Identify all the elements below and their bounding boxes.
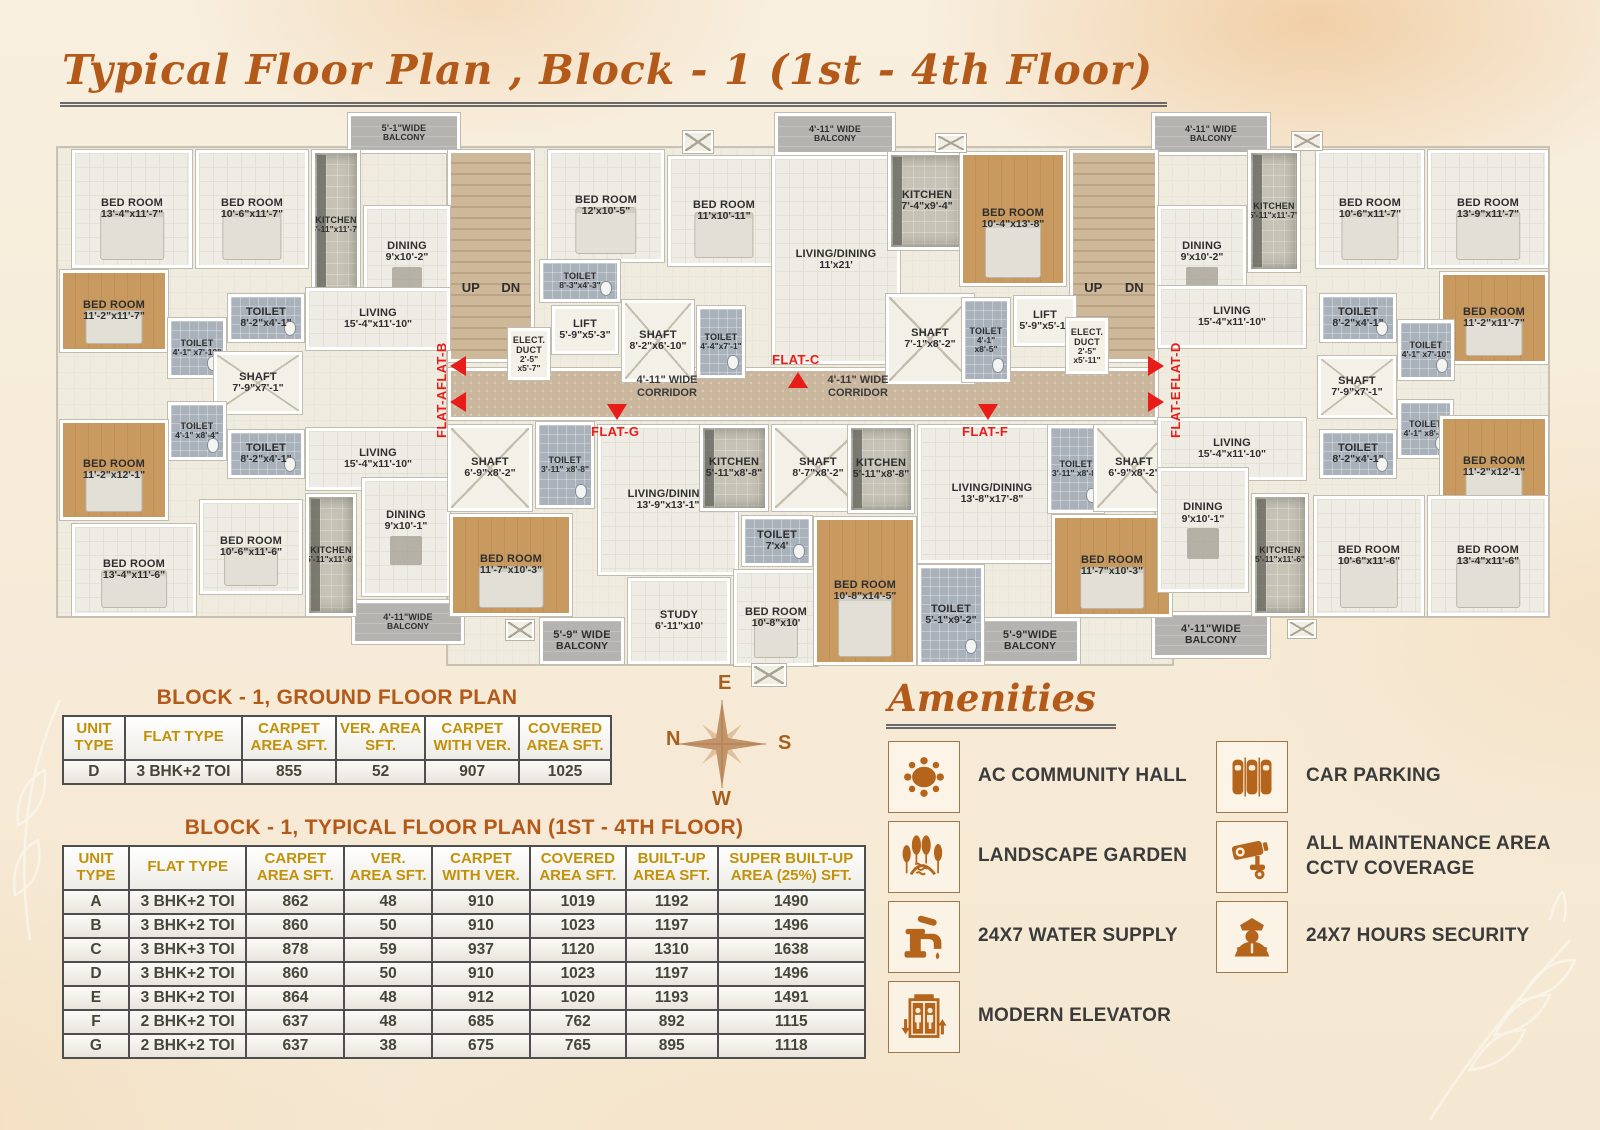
cell: 1118 (718, 1034, 865, 1058)
water-tap-icon (888, 901, 960, 973)
ground-table-title: BLOCK - 1, GROUND FLOOR PLAN (62, 686, 612, 710)
room-dimensions: 13'-8"x17'-8" (961, 494, 1024, 506)
cell: 1197 (626, 914, 718, 938)
cell: 910 (432, 962, 530, 986)
room-bed-room: BED ROOM11'-2"x11'-7" (60, 270, 168, 352)
flat-marker-flat-e: FLAT-E (1168, 386, 1184, 438)
amenities-column-left: AC COMMUNITY HALL LANDSCAPE GARDEN (888, 740, 1187, 1053)
room-bed-room: BED ROOM10'-8"x10' (734, 570, 818, 666)
room-dimensions: 7'-1"x8'-2" (904, 339, 955, 351)
cell: 1115 (718, 1010, 865, 1034)
cell: 910 (432, 914, 530, 938)
room-dimensions: 10'-4"x13'-8" (982, 219, 1045, 231)
cell: 937 (432, 938, 530, 962)
cell: 862 (246, 890, 344, 914)
cell: 3 BHK+2 TOI (129, 890, 247, 914)
amenity-label: CAR PARKING (1306, 764, 1441, 789)
room-shaft: SHAFT7'-9"x7'-1" (214, 352, 302, 414)
cell: 1025 (519, 760, 611, 784)
room-dimensions: 7'-9"x7'-1" (232, 383, 283, 395)
cell: 1490 (718, 890, 865, 914)
room-dimensions: 13'-4"x11'-6" (1457, 556, 1519, 568)
room-toilet: TOILET8'-2"x4'-1" (1320, 294, 1396, 342)
cell: 878 (246, 938, 344, 962)
room-dimensions: 4'-1" x7'-10" (1402, 350, 1451, 359)
cell: C (63, 938, 129, 962)
table-row: F2 BHK+2 TOI637486857628921115 (63, 1010, 865, 1034)
cell: 1491 (718, 986, 865, 1010)
room-dimensions: 7'-4"x9'-4" (901, 201, 952, 213)
room-dimensions: 9'x10'-2" (1181, 252, 1224, 264)
vent-box (1288, 620, 1316, 638)
room-dimensions: 8'-2"x4'-1" (1332, 454, 1383, 466)
amenity-label: 24X7 WATER SUPPLY (978, 924, 1178, 949)
stair-up-label: UP (1084, 280, 1102, 295)
compass-star-icon (672, 694, 772, 794)
room-dimensions: 7'-9"x7'-1" (1331, 387, 1382, 399)
room-dimensions: 13'-9"x11'-7" (1457, 209, 1519, 221)
room-toilet: TOILET3'-11" x8'-8" (536, 422, 594, 508)
flat-marker-flat-c: FLAT-C (772, 352, 832, 368)
amenity-label: MODERN ELEVATOR (978, 1004, 1171, 1029)
room-bed-room: BED ROOM10'-6"x11'-7" (196, 150, 308, 268)
room-dining: DINING9'x10'-1" (362, 478, 450, 596)
flat-marker-arrow (978, 404, 998, 420)
room-dimensions: 9'x10'-1" (385, 521, 428, 533)
cell: 1120 (530, 938, 626, 962)
room-dimensions: 11'-2"x11'-7" (1463, 318, 1525, 330)
room-toilet: TOILET4'-4"x7'-1" (697, 306, 745, 378)
amenity-item-modern-elevator: MODERN ELEVATOR (888, 980, 1187, 1053)
cell: 38 (344, 1034, 432, 1058)
brochure-page: Typical Floor Plan , Block - 1 (1st - 4t… (0, 0, 1600, 1130)
room-kitchen: KITCHEN5'-11"x8'-8" (700, 425, 768, 511)
room-dimensions: 8'-2"x4'-1" (240, 454, 291, 466)
room-bed-room: BED ROOM13'-4"x11'-6" (72, 524, 196, 616)
landscape-garden-icon (888, 821, 960, 893)
room-dimensions: 6'-9"x8'-2" (1108, 468, 1159, 480)
room-dimensions: 3'-11" x8'-8" (1052, 469, 1100, 478)
ground-floor-table-section: BLOCK - 1, GROUND FLOOR PLAN UNIT TYPEFL… (62, 686, 612, 785)
column-header: CARPET AREA SFT. (242, 716, 336, 760)
table-row: D3 BHK+2 TOI855529071025 (63, 760, 611, 784)
stair-up-label: UP (462, 280, 480, 295)
room-dimensions: 4'-1" x8'-5" (965, 336, 1007, 355)
room-toilet: TOILET7'x4' (742, 516, 812, 566)
room-toilet: TOILET4'-1" x8'-4" (168, 402, 226, 460)
room-bed-room: BED ROOM10'-6"x11'-6" (200, 500, 302, 594)
room-elect-duct: ELECT. DUCT2'-5" x5'-7" (508, 328, 550, 380)
room-dimensions: 12'x10'-5" (582, 206, 631, 218)
cell: 685 (432, 1010, 530, 1034)
flat-marker-flat-g: FLAT-G (591, 424, 651, 440)
cell: 2 BHK+2 TOI (129, 1010, 247, 1034)
cell: G (63, 1034, 129, 1058)
room-dimensions: 4'-1" x8'-4" (175, 431, 219, 440)
cell: 1020 (530, 986, 626, 1010)
community-table-icon (888, 741, 960, 813)
amenity-label: ALL MAINTENANCE AREA CCTV COVERAGE (1306, 832, 1561, 881)
room-dimensions: 10'-8"x10' (752, 618, 801, 630)
cell: 762 (530, 1010, 626, 1034)
compass-rose: E N S W (648, 672, 800, 814)
room-dimensions: 6'-11"x10' (655, 621, 703, 633)
flat-marker-flat-a: FLAT-A (434, 386, 450, 438)
room-toilet: TOILET8'-2"x4'-1" (1320, 430, 1396, 478)
cell: D (63, 760, 125, 784)
table-row: B3 BHK+2 TOI86050910102311971496 (63, 914, 865, 938)
cell: 765 (530, 1034, 626, 1058)
room-dimensions: 15'-4"x11'-10" (1198, 449, 1266, 461)
cell: 675 (432, 1034, 530, 1058)
typical-floor-table-section: BLOCK - 1, TYPICAL FLOOR PLAN (1ST - 4TH… (62, 816, 866, 1059)
cell: 637 (246, 1034, 344, 1058)
cell: 1638 (718, 938, 865, 962)
room-bed-room: BED ROOM10'-6"x11'-7" (1316, 150, 1424, 268)
compass-letter-south: S (778, 732, 791, 755)
room-dimensions: BALCONY (383, 133, 425, 142)
room-toilet: TOILET8'-2"x4'-1" (228, 430, 304, 478)
column-header: VER. AREA SFT. (344, 846, 432, 890)
compass-letter-north: N (666, 728, 680, 751)
cell: 59 (344, 938, 432, 962)
column-header: BUILT-UP AREA SFT. (626, 846, 718, 890)
room-dimensions: BALCONY (1004, 641, 1056, 653)
cell: 855 (242, 760, 336, 784)
room-dimensions: 8'-2"x4'-1" (240, 318, 291, 330)
flat-marker-arrow (450, 356, 466, 376)
room-dimensions: 10'-6"x11'-6" (1338, 556, 1400, 568)
header-row: UNIT TYPEFLAT TYPECARPET AREA SFT.VER. A… (63, 846, 865, 890)
stair-dn-label: DN (1125, 280, 1144, 295)
column-header: SUPER BUILT-UP AREA (25%) SFT. (718, 846, 865, 890)
room-bed-room: BED ROOM10'-6"x11'-6" (1314, 496, 1424, 616)
room-lift: LIFT5'-9"x5'-3" (552, 306, 618, 354)
cell: 1496 (718, 914, 865, 938)
room-dimensions: 11'-2"x12'-1" (1463, 467, 1525, 479)
cell: 1023 (530, 914, 626, 938)
cell: B (63, 914, 129, 938)
cell: 895 (626, 1034, 718, 1058)
room-bed-room: BED ROOM12'x10'-5" (548, 150, 664, 262)
room-dimensions: 4'-4"x7'-1" (700, 342, 741, 351)
amenity-item-water-supply: 24X7 WATER SUPPLY (888, 900, 1187, 973)
room-shaft: SHAFT6'-9"x8'-2" (448, 425, 532, 511)
room-dimensions: 10'-8"x14'-5" (834, 591, 897, 603)
cell: 50 (344, 914, 432, 938)
room-kitchen: KITCHEN5'-11"x11'-7" (312, 150, 360, 300)
compass-letter-east: E (718, 672, 731, 695)
balcony: 4'-11"WIDEBALCONY (352, 600, 464, 644)
room-dimensions: 11'-7"x10'-3" (1081, 566, 1143, 578)
amenity-label: LANDSCAPE GARDEN (978, 844, 1187, 869)
column-header: COVERED AREA SFT. (530, 846, 626, 890)
room-dimensions: 5'-11"x11'-6" (306, 555, 356, 564)
room-dimensions: 5'-11"x11'-7" (1249, 211, 1299, 220)
room-dimensions: 15'-4"x11'-10" (1198, 317, 1266, 329)
room-toilet: TOILET8'-3"x4'-3" (540, 260, 620, 302)
typical-floor-table: UNIT TYPEFLAT TYPECARPET AREA SFT.VER. A… (62, 845, 866, 1059)
room-toilet: TOILET4'-1" x8'-5" (962, 298, 1010, 382)
cell: 1310 (626, 938, 718, 962)
room-dimensions: 13'-4"x11'-7" (101, 209, 163, 221)
room-dimensions: 3'-11" x8'-8" (541, 465, 589, 474)
column-header: FLAT TYPE (129, 846, 247, 890)
room-dimensions: 5'-11"x11'-7" (312, 225, 360, 234)
room-kitchen: KITCHEN7'-4"x9'-4" (888, 152, 966, 250)
cell: 48 (344, 1010, 432, 1034)
stair-dn-label: DN (501, 280, 520, 295)
room-dimensions: 11'x10'-11" (697, 211, 750, 223)
room-dimensions: 5'-9"x5'-1" (1019, 321, 1070, 333)
room-dimensions: 11'-7"x10'-3" (480, 565, 542, 577)
room-kitchen: KITCHEN5'-11"x11'-6" (1252, 494, 1308, 616)
room-dimensions: BALCONY (556, 641, 608, 653)
room-dimensions: 5'-11"x11'-6" (1255, 555, 1305, 564)
room-dimensions: 10'-6"x11'-7" (1339, 209, 1401, 221)
balcony: 5'-9" WIDEBALCONY (540, 618, 624, 664)
room-dimensions: 11'-2"x12'-1" (83, 470, 145, 482)
balcony: 4'-11"WIDEBALCONY (1152, 612, 1270, 658)
room-dimensions: 8'-7"x8'-2" (792, 468, 843, 480)
column-header: VER. AREA SFT. (336, 716, 426, 760)
cell: 860 (246, 962, 344, 986)
room-bed-room: BED ROOM10'-8"x14'-5" (814, 517, 916, 665)
room-toilet: TOILET5'-1"x9'-2" (918, 565, 984, 665)
room-dimensions: 8'-3"x4'-3" (559, 281, 600, 290)
vent-box (1292, 132, 1322, 150)
column-header: CARPET WITH VER. (432, 846, 530, 890)
cctv-camera-icon (1216, 821, 1288, 893)
room-bed-room: BED ROOM11'-2"x12'-1" (60, 420, 168, 520)
amenities-title: Amenities (886, 676, 1116, 729)
cell: 3 BHK+2 TOI (125, 760, 242, 784)
flat-marker-flat-b: FLAT-B (434, 338, 450, 390)
room-dimensions: 11'-2"x11'-7" (83, 311, 145, 323)
room-dimensions: 5'-1"x9'-2" (925, 615, 976, 627)
room-dimensions: BALCONY (1190, 134, 1232, 143)
amenity-item-community-hall: AC COMMUNITY HALL (888, 740, 1187, 813)
room-bed-room: BED ROOM13'-4"x11'-6" (1428, 496, 1548, 616)
compass-letter-west: W (712, 788, 731, 811)
room-dimensions: 15'-4"x11'-10" (344, 459, 412, 471)
room-dimensions: 13'-9"x13'-1" (637, 500, 700, 512)
typical-table-title: BLOCK - 1, TYPICAL FLOOR PLAN (1ST - 4TH… (62, 816, 866, 840)
cell: D (63, 962, 129, 986)
balcony: 5'-1"WIDEBALCONY (348, 113, 460, 153)
room-bed-room: BED ROOM11'-7"x10'-3" (1052, 515, 1172, 617)
amenities-section: Amenities AC COMMUNITY HALL (880, 676, 1570, 729)
cell: 1019 (530, 890, 626, 914)
room-dimensions: BALCONY (387, 622, 429, 631)
column-header: CARPET WITH VER. (425, 716, 519, 760)
vent-box (506, 620, 534, 640)
cell: E (63, 986, 129, 1010)
room-dimensions: 8'-2"x4'-1" (1332, 318, 1383, 330)
room-dimensions: 2'-5" x5'-7" (511, 355, 547, 374)
table-row: E3 BHK+2 TOI86448912102011931491 (63, 986, 865, 1010)
cell: 892 (626, 1010, 718, 1034)
room-name: ELECT. DUCT (1069, 327, 1105, 347)
elevator-icon (888, 981, 960, 1053)
balcony: 4'-11" WIDEBALCONY (1152, 113, 1270, 155)
cell: 1023 (530, 962, 626, 986)
table-row: C3 BHK+3 TOI87859937112013101638 (63, 938, 865, 962)
cell: 637 (246, 1010, 344, 1034)
cell: 1193 (626, 986, 718, 1010)
cell: 52 (336, 760, 426, 784)
room-bed-room: BED ROOM13'-4"x11'-7" (72, 150, 192, 268)
cell: 864 (246, 986, 344, 1010)
cell: 912 (432, 986, 530, 1010)
room-dimensions: 5'-9"x5'-3" (559, 330, 610, 342)
flat-marker-arrow (1148, 356, 1164, 376)
room-kitchen: KITCHEN5'-11"x11'-6" (306, 494, 356, 616)
room-shaft: SHAFT7'-1"x8'-2" (886, 294, 974, 384)
amenity-label: AC COMMUNITY HALL (978, 764, 1187, 789)
flat-marker-flat-f: FLAT-F (962, 424, 1022, 440)
cell: 860 (246, 914, 344, 938)
column-header: UNIT TYPE (63, 716, 125, 760)
cell: 1496 (718, 962, 865, 986)
amenity-item-car-parking: CAR PARKING (1216, 740, 1561, 813)
cell: 48 (344, 890, 432, 914)
room-dimensions: 10'-6"x11'-7" (221, 209, 283, 221)
room-dimensions: 15'-4"x11'-10" (344, 319, 412, 331)
room-elect-duct: ELECT. DUCT2'-5" x5'-11" (1066, 318, 1108, 374)
security-guard-icon (1216, 901, 1288, 973)
cell: F (63, 1010, 129, 1034)
cell: 907 (425, 760, 519, 784)
room-dimensions: 11'x21' (819, 260, 853, 272)
room-bed-room: BED ROOM11'-7"x10'-3" (450, 514, 572, 616)
room-dimensions: 2'-5" x5'-11" (1069, 347, 1105, 366)
room-living-dining: LIVING/DINING13'-8"x17'-8" (918, 425, 1066, 563)
room-name: DINING (1183, 501, 1223, 513)
room-bed-room: BED ROOM11'x10'-11" (668, 156, 780, 266)
car-parking-icon (1216, 741, 1288, 813)
cell: 910 (432, 890, 530, 914)
room-dining: DINING9'x10'-1" (1158, 468, 1248, 592)
room-name: ELECT. DUCT (511, 335, 547, 355)
column-header: UNIT TYPE (63, 846, 129, 890)
room-kitchen: KITCHEN5'-11"x8'-8" (848, 425, 914, 513)
cell: A (63, 890, 129, 914)
room-bed-room: BED ROOM13'-9"x11'-7" (1428, 150, 1548, 268)
cell: 3 BHK+2 TOI (129, 962, 247, 986)
table-row: G2 BHK+2 TOI637386757658951118 (63, 1034, 865, 1058)
room-toilet: TOILET4'-1" x7'-10" (1398, 320, 1454, 380)
room-shaft: SHAFT8'-2"x6'-10" (622, 300, 694, 382)
room-dimensions: BALCONY (814, 134, 856, 143)
table-row: A3 BHK+2 TOI86248910101911921490 (63, 890, 865, 914)
flat-marker-arrow (607, 404, 627, 420)
flat-marker-flat-d: FLAT-D (1168, 338, 1184, 390)
cell: 3 BHK+2 TOI (129, 986, 247, 1010)
column-header: CARPET AREA SFT. (246, 846, 344, 890)
room-dimensions: 5'-11"x8'-8" (706, 468, 762, 480)
room-dimensions: 10'-6"x11'-6" (220, 547, 282, 559)
room-bed-room: BED ROOM11'-2"x11'-7" (1440, 272, 1548, 364)
balcony: 4'-11" WIDEBALCONY (775, 113, 895, 155)
ground-floor-table: UNIT TYPEFLAT TYPECARPET AREA SFT.VER. A… (62, 715, 612, 785)
room-dimensions: 6'-9"x8'-2" (464, 468, 515, 480)
cell: 1197 (626, 962, 718, 986)
amenity-item-landscape-garden: LANDSCAPE GARDEN (888, 820, 1187, 893)
room-living-dining: LIVING/DINING11'x21' (772, 156, 900, 364)
cell: 1192 (626, 890, 718, 914)
table-row: D3 BHK+2 TOI86050910102311971496 (63, 962, 865, 986)
room-dimensions: 9'x10'-1" (1182, 514, 1225, 526)
room-shaft: SHAFT7'-9"x7'-1" (1318, 356, 1396, 418)
cell: 48 (344, 986, 432, 1010)
vent-box (683, 131, 713, 153)
vent-box (936, 134, 966, 152)
balcony: 5'-9"WIDEBALCONY (980, 618, 1080, 664)
cell: 50 (344, 962, 432, 986)
room-dimensions: 8'-2"x6'-10" (630, 341, 687, 353)
room-dimensions: 13'-4"x11'-6" (103, 570, 165, 582)
room-dimensions: 9'x10'-2" (386, 252, 429, 264)
header-row: UNIT TYPEFLAT TYPECARPET AREA SFT.VER. A… (63, 716, 611, 760)
room-living: LIVING15'-4"x11'-10" (306, 288, 450, 350)
column-header: FLAT TYPE (125, 716, 242, 760)
flat-marker-arrow (1148, 392, 1164, 412)
cell: 3 BHK+2 TOI (129, 914, 247, 938)
room-study: STUDY6'-11"x10' (628, 578, 730, 664)
column-header: COVERED AREA SFT. (519, 716, 611, 760)
flat-marker-arrow (450, 392, 466, 412)
corridor-label: 4'-11" WIDE CORRIDOR (800, 374, 916, 414)
room-dimensions: BALCONY (1185, 635, 1237, 647)
leaf-decoration (1400, 880, 1600, 1130)
room-dimensions: 5'-11"x8'-8" (853, 469, 909, 481)
leaf-decoration (0, 690, 70, 950)
flat-marker-arrow (788, 372, 808, 388)
room-kitchen: KITCHEN5'-11"x11'-7" (1248, 150, 1300, 272)
cell: 2 BHK+2 TOI (129, 1034, 247, 1058)
room-toilet: TOILET8'-2"x4'-1" (228, 294, 304, 342)
vent-box (752, 664, 786, 686)
cell: 3 BHK+3 TOI (129, 938, 247, 962)
room-dimensions: 7'x4' (766, 541, 789, 553)
room-bed-room: BED ROOM10'-4"x13'-8" (960, 152, 1066, 286)
